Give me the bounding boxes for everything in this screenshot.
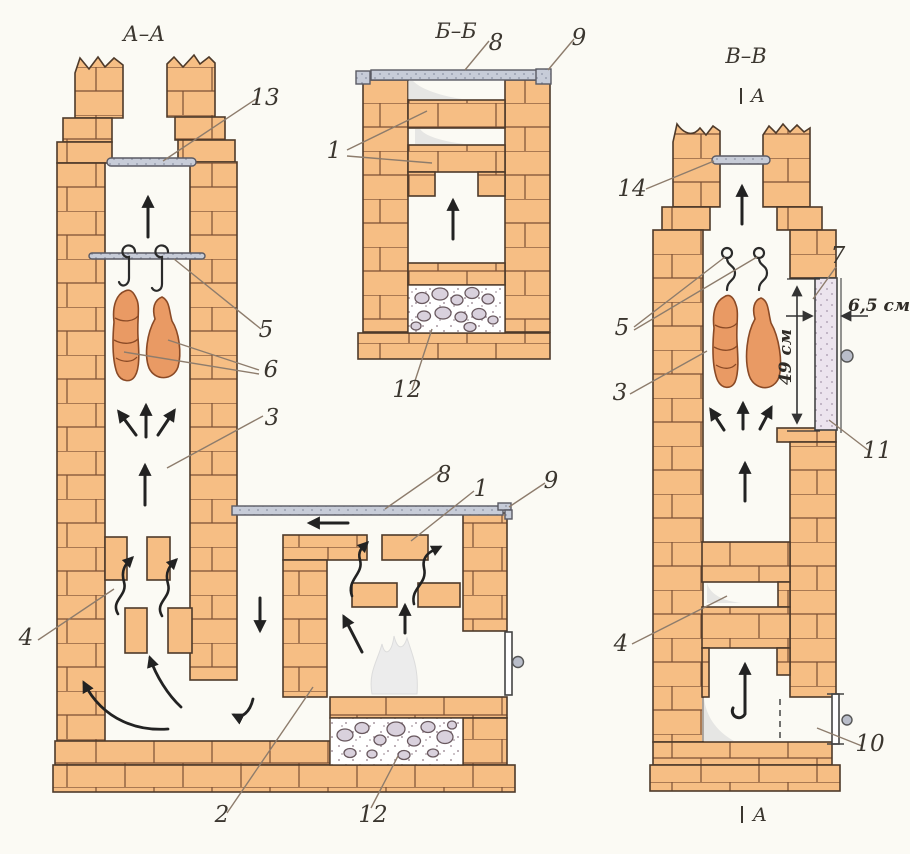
callout-12-bb: 12 (392, 377, 421, 403)
callout-6: 6 (264, 357, 279, 383)
bb-lid-cap (356, 71, 370, 84)
callout-8-bb: 8 (489, 30, 504, 56)
aa-central-column (190, 162, 237, 680)
door-panel-7 (815, 278, 837, 430)
bb-stone-bed (408, 285, 505, 333)
hook-icon (152, 245, 168, 290)
aa-floor-left (55, 741, 330, 765)
callout-10: 10 (855, 731, 884, 757)
aa-firebox-door (505, 632, 524, 695)
meat-slab (113, 290, 139, 380)
vv-corbel (777, 207, 822, 230)
aa-hearth-row (330, 697, 507, 718)
aa-chimney-right-stub (167, 55, 215, 117)
smokehouse-diagram: А–А Б–Б В–В 13 5 6 3 4 2 12 8 1 9 8 9 1 … (0, 0, 910, 854)
vv-corbel (662, 207, 710, 230)
aa-firebox-right-wall (463, 513, 507, 631)
hook-eye-icon (722, 248, 732, 258)
svg-text:А: А (751, 804, 767, 826)
aa-corbel (57, 142, 112, 163)
bb-left-wall (363, 80, 408, 332)
bb-chamber-bottom (408, 263, 505, 285)
firebox-lid (232, 506, 503, 515)
hook-eye-icon (754, 248, 764, 258)
aa-corbel (63, 118, 112, 142)
vv-floor-base (650, 765, 840, 791)
callout-5-aa: 5 (259, 317, 274, 343)
callout-4-vv: 4 (613, 631, 629, 657)
section-marker-a-top: А (741, 85, 765, 107)
aa-left-wall (57, 163, 105, 741)
meat-slab (713, 296, 738, 388)
callout-4-aa: 4 (18, 625, 34, 651)
aa-chimney-left-stub (75, 57, 123, 118)
vv-chimney-left-stub (673, 124, 720, 207)
aa-stones-side (463, 718, 507, 765)
vv-slot-filler (778, 582, 790, 607)
section-title-bb: Б–Б (434, 19, 476, 43)
vv-throat-side (777, 648, 790, 675)
callout-11: 11 (862, 438, 891, 464)
vv-floor (653, 742, 832, 765)
dimension-opening-height: 49 см (776, 329, 796, 385)
callout-14: 14 (617, 176, 646, 202)
hook-icon (119, 245, 135, 285)
aa-hooks (119, 245, 168, 290)
vv-band2 (702, 607, 790, 648)
vv-oven-band (702, 542, 790, 582)
callout-13: 13 (250, 85, 279, 111)
diagram-drawing: А–А Б–Б В–В 13 5 6 3 4 2 12 8 1 9 8 9 1 … (0, 0, 910, 854)
bb-lintel (408, 100, 505, 128)
aa-partition-top (283, 535, 367, 560)
door-knob-icon (513, 657, 524, 668)
callout-3-aa: 3 (265, 405, 280, 431)
bb-base (358, 333, 550, 359)
bb-right-wall (505, 80, 550, 332)
callout-12-aa: 12 (358, 802, 387, 828)
meat-ham (147, 297, 180, 378)
vv-chimney-right-stub (763, 124, 810, 207)
svg-text:А: А (749, 85, 765, 107)
bb-stub (478, 172, 505, 196)
damper-14 (712, 156, 770, 164)
dimension-door-thickness: 6,5 см (848, 296, 910, 316)
callout-3-vv: 3 (613, 380, 628, 406)
vv-meat (713, 296, 781, 388)
callout-9-bb: 9 (572, 25, 587, 51)
fire-flames (371, 636, 417, 694)
callout-8-aa: 8 (437, 462, 452, 488)
vv-right-wall-top (790, 230, 836, 278)
bb-lid-8 (371, 70, 538, 80)
damper-13 (107, 158, 196, 166)
aa-partition-column (283, 560, 327, 697)
callout-2: 2 (214, 802, 230, 828)
bb-lid-latch-9 (536, 69, 551, 84)
callout-5-vv: 5 (615, 315, 630, 341)
lid-latch-9 (505, 510, 512, 519)
hook-icon (759, 258, 767, 290)
aa-meat (113, 290, 180, 380)
bb-stub (408, 172, 435, 196)
callout-1-bb: 1 (327, 138, 342, 164)
callout-9-aa: 9 (544, 468, 559, 494)
vv-hooks (722, 248, 767, 290)
callout-1-aa: 1 (474, 476, 489, 502)
vv-lower-door (780, 694, 852, 744)
section-marker-a-bottom: А (742, 804, 767, 826)
vv-throat-side (702, 648, 709, 697)
hanging-rod (89, 253, 205, 259)
callout-7: 7 (831, 243, 846, 269)
door-knob-icon (841, 350, 853, 362)
bb-lintel (408, 145, 505, 172)
section-title-vv: В–В (724, 44, 766, 68)
section-title-aa: А–А (121, 22, 165, 46)
vv-right-wall-mid (790, 442, 836, 697)
door-knob-icon (842, 715, 852, 725)
aa-floor-base (53, 765, 515, 792)
